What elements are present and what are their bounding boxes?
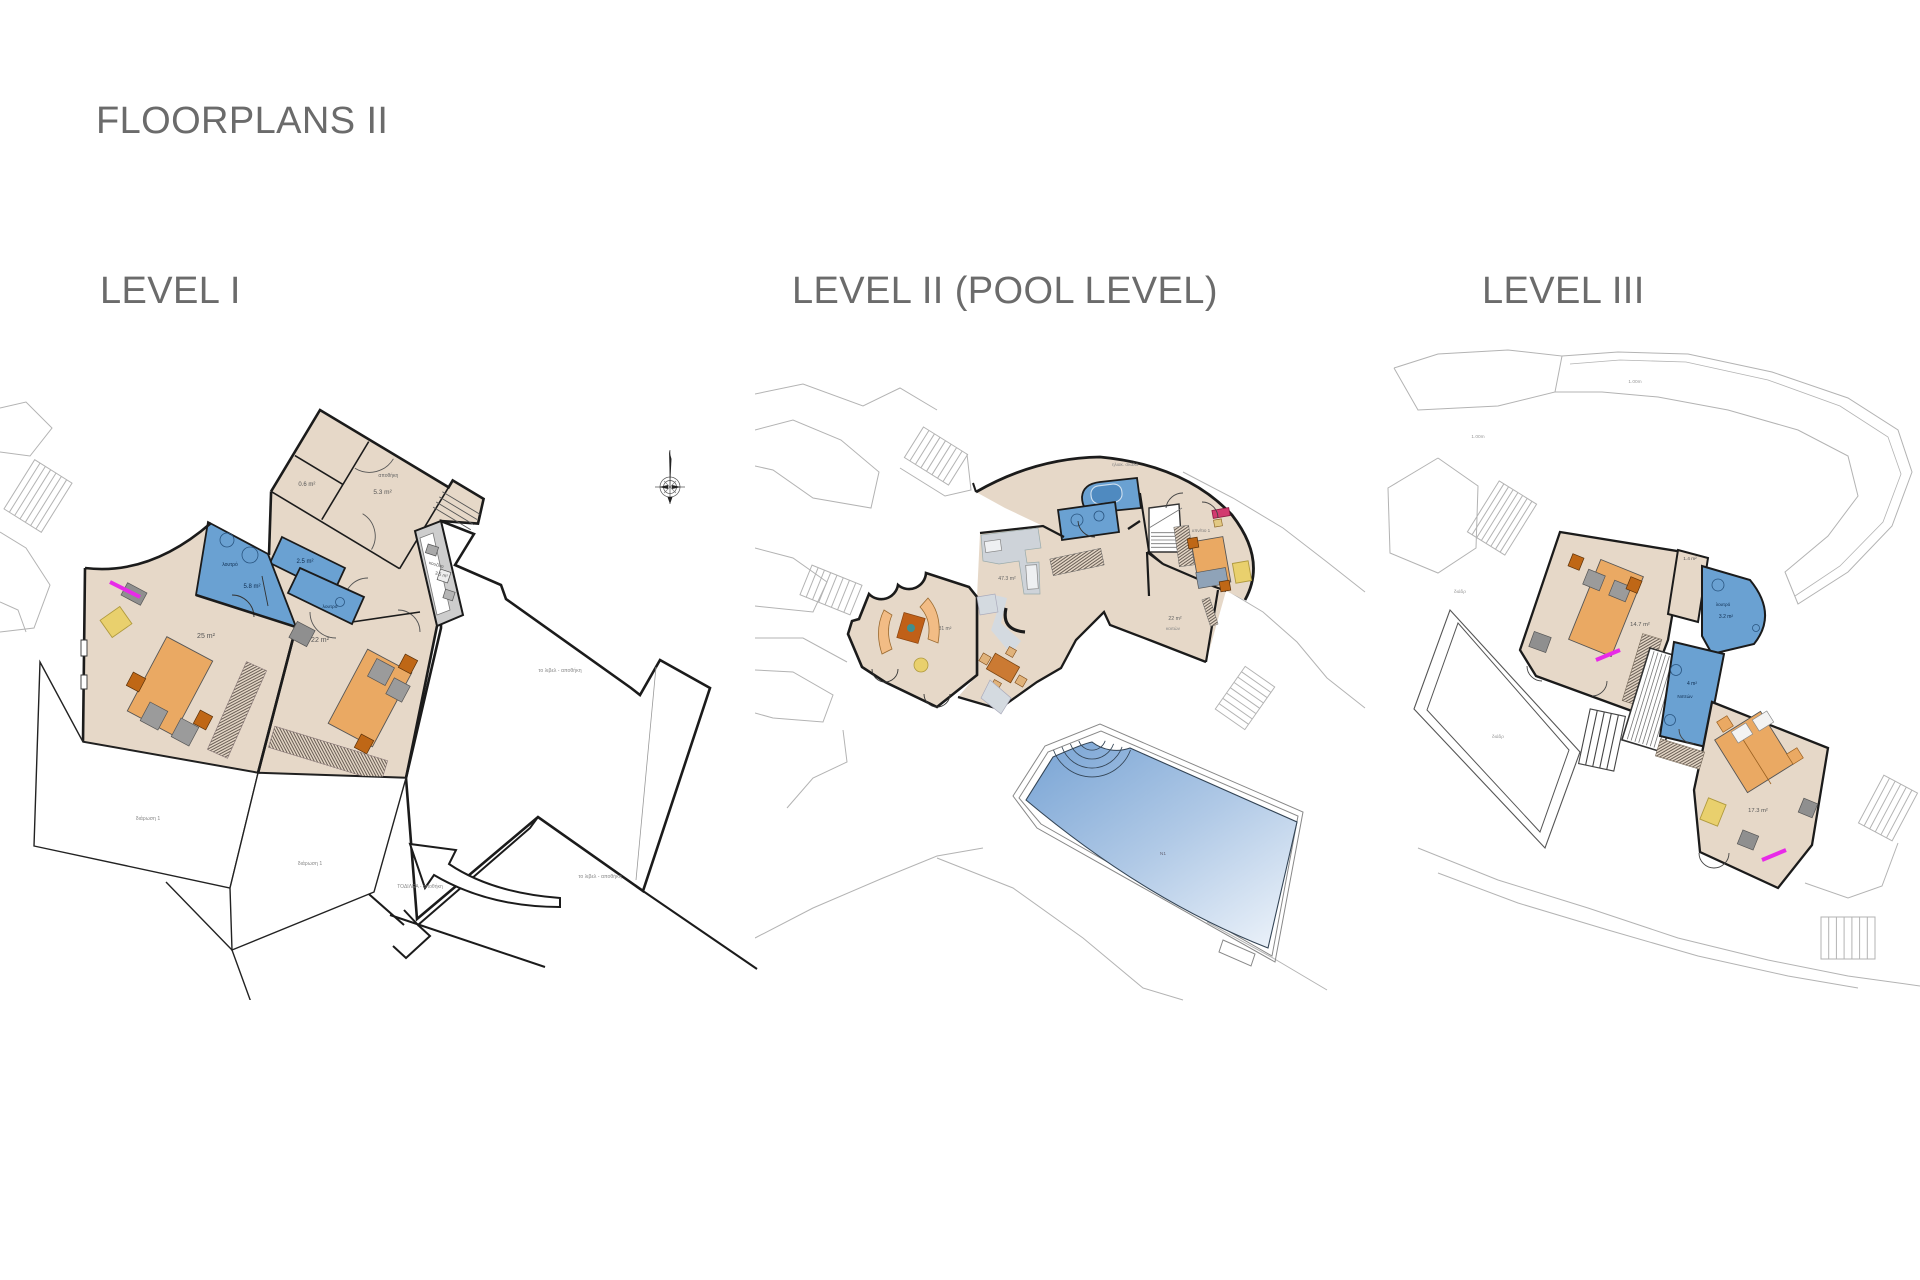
svg-text:0.6 m²: 0.6 m² — [298, 482, 315, 488]
svg-text:το λιβελ - αποθήκη: το λιβελ - αποθήκη — [538, 667, 581, 674]
svg-text:διάδρ: διάδρ — [1492, 733, 1504, 740]
svg-text:λουτρό: λουτρό — [222, 561, 238, 568]
svg-text:ΤΟΔΙΛΕΑ - αποθήκη: ΤΟΔΙΛΕΑ - αποθήκη — [397, 883, 443, 890]
svg-text:ηλιακ. σκάλα: ηλιακ. σκάλα — [1112, 461, 1138, 467]
svg-text:διάδρ: διάδρ — [1454, 588, 1466, 595]
svg-text:λουτρό: λουτρό — [1716, 601, 1731, 607]
svg-text:25 m²: 25 m² — [197, 633, 216, 640]
svg-text:1.00m: 1.00m — [1628, 379, 1641, 385]
svg-text:Νιπτών: Νιπτών — [1677, 693, 1693, 699]
svg-text:διάρωση 1: διάρωση 1 — [136, 815, 161, 822]
svg-text:17.3 m²: 17.3 m² — [1748, 808, 1768, 814]
svg-text:διάρωση 1: διάρωση 1 — [298, 860, 323, 867]
svg-text:3.2 m²: 3.2 m² — [1719, 614, 1734, 620]
svg-text:2.5 m²: 2.5 m² — [296, 559, 313, 565]
svg-text:47.3 m²: 47.3 m² — [998, 576, 1016, 582]
svg-text:1.4 m²: 1.4 m² — [1683, 556, 1697, 562]
svg-text:5.3 m²: 5.3 m² — [373, 489, 392, 496]
svg-text:υπν/τιο 1: υπν/τιο 1 — [1192, 528, 1211, 533]
svg-text:αποθήκη: αποθήκη — [378, 472, 398, 479]
svg-text:31 m²: 31 m² — [939, 626, 952, 632]
svg-text:22 m²: 22 m² — [311, 637, 330, 644]
svg-text:το λιβελ - αποθήκη: το λιβελ - αποθήκη — [578, 873, 621, 880]
svg-text:5.8 m²: 5.8 m² — [243, 584, 260, 590]
svg-text:22 m²: 22 m² — [1168, 616, 1182, 622]
svg-text:Ν1: Ν1 — [1160, 851, 1166, 857]
svg-text:14.7 m²: 14.7 m² — [1630, 622, 1650, 628]
svg-text:κοιτών: κοιτών — [1166, 625, 1181, 632]
svg-text:λουτρό: λουτρό — [323, 603, 338, 610]
svg-text:1.00m: 1.00m — [1471, 434, 1484, 440]
svg-text:4 m²: 4 m² — [1687, 681, 1697, 687]
